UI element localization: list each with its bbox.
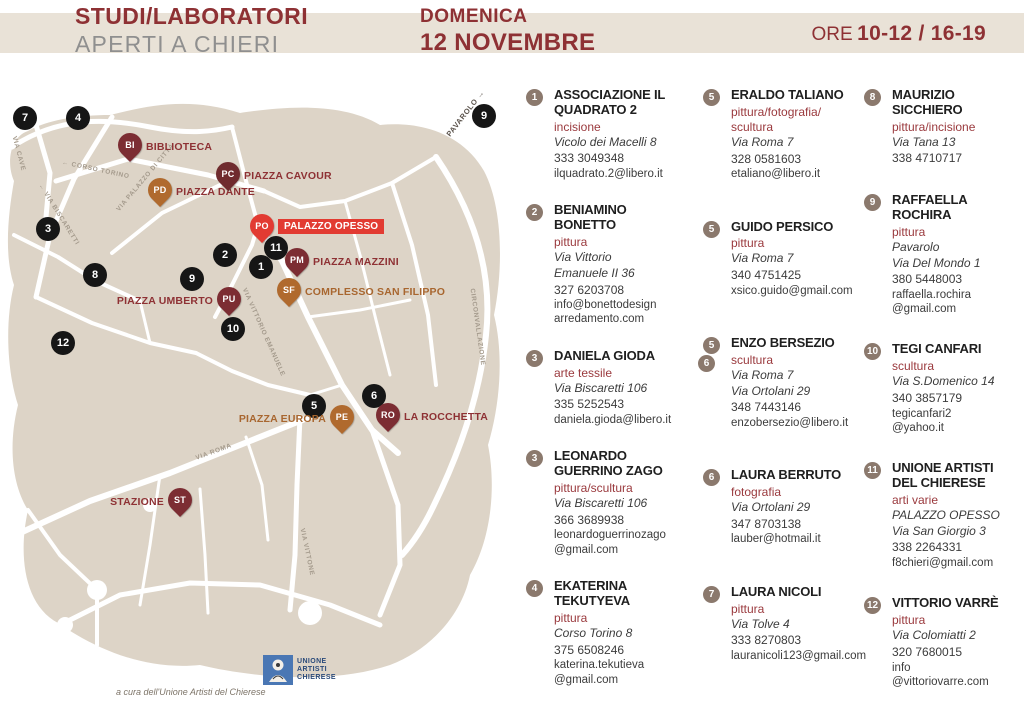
logo-text-line2: ARTISTI [297,666,336,674]
artist-email: lauber@hotmail.it [731,532,861,546]
pin-ro-icon: RO [371,398,405,432]
pin-code-label: RO [376,403,400,427]
address-line: Via Tolve 4 [731,617,861,633]
entry-number-badge: 8 [864,89,881,106]
address-line: Via Colomiatti 2 [892,628,1016,644]
artist-email: daniela.gioda@libero.it [554,413,676,427]
entry-markers: 9 [864,194,881,211]
artist-category: scultura [892,359,1016,374]
artist-category: incisione [554,120,676,135]
email-line: katerina.tekutieva [554,658,676,672]
artist-address: Via Roma 7 [731,135,861,151]
address-line: Via San Giorgio 3 [892,524,1016,540]
entry-markers: 10 [864,343,881,360]
artist-name: LAURA NICOLI [731,585,861,600]
category-line: pittura [554,235,676,250]
email-line: @gmail.com [892,302,1016,316]
address-line: Via Ortolani 29 [731,500,861,516]
artist-address: Via S.Domenico 14 [892,374,1016,390]
pin-code-label: PM [285,248,309,272]
entry-number-badge: 5 [703,221,720,238]
artist-phone: 327 6203708 [554,283,676,299]
artist-address: Via Colomiatti 2 [892,628,1016,644]
email-line: leonardoguerrinozago [554,528,676,542]
entry-markers: 7 [703,586,720,603]
artist-phone: 320 7680015 [892,645,1016,661]
address-line: Via Biscaretti 106 [554,496,676,512]
artist-address: Via Roma 7Via Ortolani 29 [731,368,861,399]
map-marker-1: 1 [249,255,273,279]
map-marker-8: 8 [83,263,107,287]
map-pin-label: COMPLESSO SAN FILIPPO [305,286,445,298]
map-marker-3: 3 [36,217,60,241]
map-pin-label: PIAZZA DANTE [176,186,255,198]
artist-phone: 347 8703138 [731,517,861,533]
poster-title: STUDI/LABORATORI APERTI A CHIERI [75,4,308,57]
map-pin-label: PIAZZA MAZZINI [313,256,399,268]
email-line: xsico.guido@gmail.com [731,284,861,298]
map-marker-10: 10 [221,317,245,341]
entry-number-badge: 1 [526,89,543,106]
email-line: lauranicoli123@gmail.com [731,649,861,663]
category-line: pittura [731,236,861,251]
entry-number-badge: 12 [864,597,881,614]
artist-phone: 328 0581603 [731,152,861,168]
artist-name: LAURA BERRUTO [731,468,861,483]
pin-code-label: SF [277,278,301,302]
artist-entry: 4 EKATERINA TEKUTYEVA pittura Corso Tori… [526,579,676,687]
artist-entry: 7 LAURA NICOLI pittura Via Tolve 4 333 8… [703,585,861,664]
artist-name: ERALDO TALIANO [731,88,861,103]
email-line: daniela.gioda@libero.it [554,413,676,427]
entry-markers: 5 [703,89,720,106]
entry-markers: 1 [526,89,543,106]
artist-name: RAFFAELLA ROCHIRA [892,193,1016,223]
address-line: Via Ortolani 29 [731,384,861,400]
credit-line: a cura dell'Unione Artisti del Chierese [116,687,265,697]
artist-entry: 12 VITTORIO VARRÈ pittura Via Colomiatti… [864,596,1016,689]
entry-number-badge: 3 [526,450,543,467]
artist-name: MAURIZIO SICCHIERO [892,88,1016,118]
artist-address: Via Biscaretti 106 [554,496,676,512]
artist-email: leonardoguerrinozago@gmail.com [554,528,676,557]
entry-markers: 11 [864,462,881,479]
entry-markers: 6 [703,469,720,486]
address-line: Via Roma 7 [731,368,861,384]
artist-name: ENZO BERSEZIO [731,336,861,351]
category-line: pittura [731,602,861,617]
artist-email: xsico.guido@gmail.com [731,284,861,298]
artist-entry: 10 TEGI CANFARI scultura Via S.Domenico … [864,342,1016,435]
category-line: pittura [892,613,1016,628]
pin-pm-icon: PM [280,243,314,277]
artist-address: Via Tana 13 [892,135,1016,151]
map: PAVAROLO → 7438122111910569BIBIBLIOTECAP… [0,85,515,715]
address-line: Via Biscaretti 106 [554,381,676,397]
artist-email: katerina.tekutieva@gmail.com [554,658,676,687]
email-line: @vittoriovarre.com [892,675,1016,689]
artist-entry: 1 ASSOCIAZIONE IL QUADRATO 2 incisione V… [526,88,676,181]
pin-code-label: PD [148,178,172,202]
artist-category: arte tessile [554,366,676,381]
email-line: info [892,661,1016,675]
event-hours-label: ORE [812,24,853,45]
poster-page: STUDI/LABORATORI APERTI A CHIERI DOMENIC… [0,0,1024,715]
artist-address: PavaroloVia Del Mondo 1 [892,240,1016,271]
map-pin-label: PIAZZA EUROPA [239,413,326,425]
address-line: Via Vittorio [554,250,676,266]
artist-entry: 5 ERALDO TALIANO pittura/fotografia/scul… [703,88,861,182]
artist-name: TEGI CANFARI [892,342,1016,357]
entry-markers: 3 [526,350,543,367]
email-line: ilquadrato.2@libero.it [554,167,676,181]
artist-address: Via Tolve 4 [731,617,861,633]
artist-entry: 2 BENIAMINO BONETTO pittura Via Vittorio… [526,203,676,326]
map-pin-label: PALAZZO OPESSO [278,219,384,234]
artist-category: pittura/incisione [892,120,1016,135]
address-line: Pavarolo [892,240,1016,256]
artist-phone: 340 3857179 [892,391,1016,407]
pin-code-label: PU [217,287,241,311]
listing-column-1: 1 ASSOCIAZIONE IL QUADRATO 2 incisione V… [526,88,676,709]
email-line: f8chieri@gmail.com [892,556,1016,570]
artist-email: info@vittoriovarre.com [892,661,1016,690]
email-line: lauber@hotmail.it [731,532,861,546]
map-marker-2: 2 [213,243,237,267]
unione-artisti-logo: UNIONE ARTISTI CHIERESE [263,655,336,685]
event-date-value: 12 NOVEMBRE [420,30,595,56]
email-line: enzobersezio@libero.it [731,416,861,430]
artist-name: BENIAMINO BONETTO [554,203,676,233]
artist-category: pittura [731,236,861,251]
artist-phone: 366 3689938 [554,513,676,529]
artist-address: PALAZZO OPESSOVia San Giorgio 3 [892,508,1016,539]
entry-markers: 56 [703,337,720,372]
artist-email: ilquadrato.2@libero.it [554,167,676,181]
map-marker-12: 12 [51,331,75,355]
artist-entry: 9 RAFFAELLA ROCHIRA pittura PavaroloVia … [864,193,1016,316]
category-line: pittura/fotografia/ [731,105,861,120]
category-line: pittura [554,611,676,626]
artist-email: lauranicoli123@gmail.com [731,649,861,663]
email-line: etaliano@libero.it [731,167,861,181]
map-marker-7: 7 [13,106,37,130]
event-hours: ORE 10-12 / 16-19 [812,22,986,46]
pin-code-label: BI [118,133,142,157]
artist-entry: 3 DANIELA GIODA arte tessile Via Biscare… [526,349,676,428]
artist-name: UNIONE ARTISTI DEL CHIERESE [892,461,1016,491]
listing-column-3: 8 MAURIZIO SICCHIERO pittura/incisione V… [864,88,1016,715]
artist-email: info@bonettodesignarredamento.com [554,298,676,327]
entry-number-badge: 5 [703,89,720,106]
artist-email: enzobersezio@libero.it [731,416,861,430]
pin-pe-icon: PE [325,400,359,434]
entry-number-badge: 9 [864,194,881,211]
artist-phone: 333 8270803 [731,633,861,649]
artist-entry: 6 LAURA BERRUTO fotografia Via Ortolani … [703,468,861,547]
category-line: arte tessile [554,366,676,381]
artist-category: pittura [892,613,1016,628]
artist-entry: 3 LEONARDO GUERRINO ZAGO pittura/scultur… [526,449,676,557]
entry-markers: 4 [526,580,543,597]
artist-category: pittura [554,611,676,626]
entry-markers: 5 [703,221,720,238]
map-pin-label: STAZIONE [110,496,164,508]
pin-code-label: PC [216,162,240,186]
artist-category: pittura/scultura [554,481,676,496]
artist-entry: 11 UNIONE ARTISTI DEL CHIERESE arti vari… [864,461,1016,570]
artist-address: Via Ortolani 29 [731,500,861,516]
artist-category: pittura [731,602,861,617]
artist-phone: 338 2264331 [892,540,1016,556]
entry-number-badge: 11 [864,462,881,479]
entry-number-badge: 7 [703,586,720,603]
event-date-day: DOMENICA [420,7,595,28]
artist-phone: 348 7443146 [731,400,861,416]
entry-number-badge: 4 [526,580,543,597]
artist-email: raffaella.rochira@gmail.com [892,288,1016,317]
entry-number-badge: 10 [864,343,881,360]
artist-entry: 8 MAURIZIO SICCHIERO pittura/incisione V… [864,88,1016,167]
address-line: PALAZZO OPESSO [892,508,1016,524]
pin-pu-icon: PU [212,282,246,316]
entry-number-badge: 6 [703,469,720,486]
address-line: Via Roma 7 [731,135,861,151]
email-line: @gmail.com [554,543,676,557]
artist-phone: 340 4751425 [731,268,861,284]
artist-entry: 5 GUIDO PERSICO pittura Via Roma 7 340 4… [703,220,861,299]
map-pin-label: PIAZZA CAVOUR [244,170,332,182]
listing-column-2: 5 ERALDO TALIANO pittura/fotografia/scul… [703,88,861,701]
map-pin-label: PIAZZA UMBERTO [117,295,213,307]
artist-category: arti varie [892,493,1016,508]
address-line: Corso Torino 8 [554,626,676,642]
logo-text: UNIONE ARTISTI CHIERESE [297,658,336,682]
artist-name: VITTORIO VARRÈ [892,596,1016,611]
address-line: Via Roma 7 [731,251,861,267]
pin-po-icon: PO [245,209,279,243]
pin-sf-icon: SF [272,273,306,307]
pin-code-label: PO [250,214,274,238]
category-line: scultura [731,353,861,368]
address-line: Via Del Mondo 1 [892,256,1016,272]
artist-email: tegicanfari2@yahoo.it [892,407,1016,436]
category-line: scultura [731,120,861,135]
entry-number-badge: 2 [526,204,543,221]
event-date: DOMENICA 12 NOVEMBRE [420,7,595,56]
email-line: @yahoo.it [892,421,1016,435]
pin-st-icon: ST [163,483,197,517]
artist-name: GUIDO PERSICO [731,220,861,235]
logo-figure-icon [263,655,293,685]
entry-number-badge: 5 [703,337,720,354]
category-line: incisione [554,120,676,135]
category-line: pittura [892,225,1016,240]
logo-text-line3: CHIERESE [297,674,336,682]
artist-email: f8chieri@gmail.com [892,556,1016,570]
artist-phone: 338 4710717 [892,151,1016,167]
category-line: arti varie [892,493,1016,508]
artist-name: DANIELA GIODA [554,349,676,364]
map-marker-9: 9 [472,104,496,128]
event-hours-value: 10-12 / 16-19 [857,22,986,45]
artist-name: LEONARDO GUERRINO ZAGO [554,449,676,479]
map-marker-4: 4 [66,106,90,130]
entry-markers: 3 [526,450,543,467]
artist-category: fotografia [731,485,861,500]
artist-phone: 380 5448003 [892,272,1016,288]
pin-pd-icon: PD [143,173,177,207]
artist-name: ASSOCIAZIONE IL QUADRATO 2 [554,88,676,118]
artist-category: pittura/fotografia/scultura [731,105,861,135]
artist-address: Via Biscaretti 106 [554,381,676,397]
pin-code-label: PE [330,405,354,429]
entry-markers: 12 [864,597,881,614]
artist-category: pittura [554,235,676,250]
artist-address: Via VittorioEmanuele II 36 [554,250,676,281]
pin-pc-icon: PC [211,157,245,191]
artist-entry: 56 ENZO BERSEZIO scultura Via Roma 7Via … [703,336,861,430]
artist-phone: 335 5252543 [554,397,676,413]
map-marker-9: 9 [180,267,204,291]
map-pin-label: LA ROCCHETTA [404,411,488,423]
entry-markers: 8 [864,89,881,106]
address-line: Vicolo dei Macelli 8 [554,135,676,151]
category-line: pittura/scultura [554,481,676,496]
map-pin-label: BIBLIOTECA [146,141,212,153]
email-line: info@bonettodesign [554,298,676,312]
category-line: fotografia [731,485,861,500]
email-line: tegicanfari2 [892,407,1016,421]
pin-code-label: ST [168,488,192,512]
artist-phone: 333 3049348 [554,151,676,167]
logo-text-line1: UNIONE [297,658,336,666]
category-line: pittura/incisione [892,120,1016,135]
address-line: Via Tana 13 [892,135,1016,151]
artist-address: Vicolo dei Macelli 8 [554,135,676,151]
artist-address: Via Roma 7 [731,251,861,267]
email-line: raffaella.rochira [892,288,1016,302]
email-line: @gmail.com [554,673,676,687]
artist-name: EKATERINA TEKUTYEVA [554,579,676,609]
email-line: arredamento.com [554,312,676,326]
entry-markers: 2 [526,204,543,221]
artist-address: Corso Torino 8 [554,626,676,642]
artist-phone: 375 6508246 [554,643,676,659]
pin-bi-icon: BI [113,128,147,162]
poster-title-line2: APERTI A CHIERI [75,32,308,57]
artist-category: pittura [892,225,1016,240]
category-line: scultura [892,359,1016,374]
poster-title-line1: STUDI/LABORATORI [75,4,308,29]
entry-number-badge: 6 [698,355,715,372]
address-line: Via S.Domenico 14 [892,374,1016,390]
entry-number-badge: 3 [526,350,543,367]
address-line: Emanuele II 36 [554,266,676,282]
artist-email: etaliano@libero.it [731,167,861,181]
artist-category: scultura [731,353,861,368]
